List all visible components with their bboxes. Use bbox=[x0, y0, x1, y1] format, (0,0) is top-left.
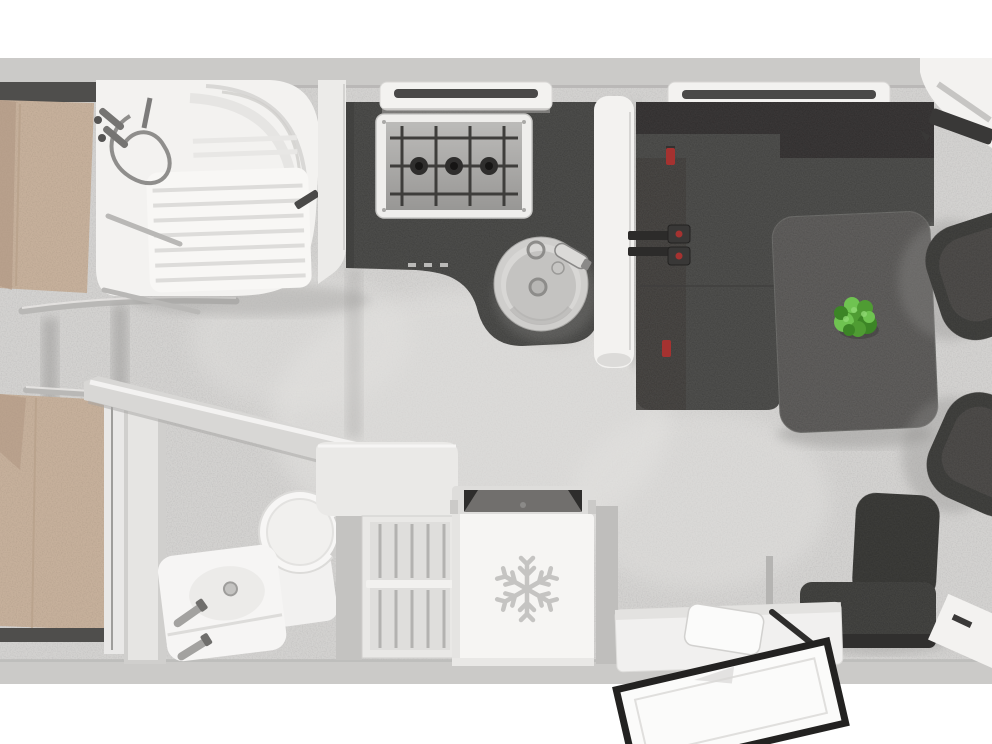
mixer-knob-2 bbox=[98, 134, 106, 142]
wardrobe-panel-face bbox=[128, 410, 158, 660]
mixer-knob-1 bbox=[94, 116, 102, 124]
wardrobe-white-strip bbox=[104, 398, 124, 654]
window-slot bbox=[394, 89, 538, 98]
sofa-left-bolster bbox=[636, 158, 686, 410]
belt-bar-1 bbox=[628, 231, 674, 240]
fridge-latch bbox=[520, 502, 526, 508]
partition-foot bbox=[597, 353, 631, 367]
belt-tab-top bbox=[666, 148, 675, 165]
counter-cast-shadow bbox=[346, 268, 362, 438]
belt-bar-2 bbox=[628, 247, 674, 256]
cabinet-bay-top bbox=[370, 522, 450, 580]
fridge-vent bbox=[464, 490, 582, 512]
cabinet-shelf-divider bbox=[366, 580, 454, 588]
belt-tab-bottom bbox=[662, 340, 671, 357]
galley-end-panel bbox=[596, 506, 618, 664]
dinette bbox=[628, 82, 939, 448]
worktop-left-shade bbox=[346, 102, 354, 268]
bed1-headboard bbox=[0, 82, 96, 102]
centre-partition bbox=[594, 96, 634, 368]
sink-drain bbox=[530, 279, 546, 295]
window-slot bbox=[682, 90, 876, 99]
washroom-post bbox=[336, 514, 362, 660]
floorplan-image: Caravan interior floor plan — top-down 3… bbox=[0, 0, 992, 744]
shower-side-panel bbox=[318, 80, 346, 284]
gas-hob bbox=[376, 114, 532, 218]
hob-burners bbox=[410, 157, 498, 175]
cabinet-bay-bottom bbox=[370, 588, 450, 650]
worktop-hinges bbox=[408, 263, 448, 267]
corner-shelf bbox=[316, 442, 458, 516]
bed-leg-shadow-1 bbox=[42, 318, 58, 410]
basin-drain bbox=[223, 582, 237, 596]
bed2-footboard bbox=[0, 628, 104, 642]
washbasin bbox=[156, 543, 288, 664]
door-jamb bbox=[766, 556, 773, 610]
kitchen-window bbox=[380, 82, 552, 113]
window-shadow bbox=[382, 108, 550, 113]
fridge bbox=[450, 486, 596, 666]
margin-top bbox=[0, 0, 992, 58]
slatted-cabinet bbox=[362, 516, 458, 658]
faucet-base bbox=[552, 262, 564, 274]
